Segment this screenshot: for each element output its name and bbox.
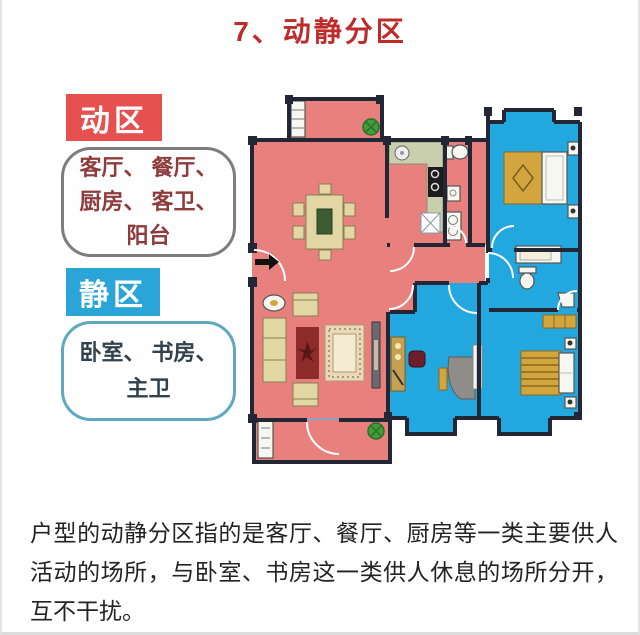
dining-chair [293,226,304,239]
infographic-page: 7、动静分区 动区 客厅、 餐厅、 厨房、 客卫、 阳台 静区 卧室、 书房、 … [0,0,640,635]
dresser [543,315,576,328]
bedroom-bay [499,418,550,434]
active-zone-room-list: 客厅、 餐厅、 厨房、 客卫、 阳台 [61,147,236,257]
sofa [263,318,286,382]
side-table-decor [270,300,278,306]
lamp-icon [568,341,573,346]
prep-table [421,213,440,233]
dining-chair [319,250,331,260]
page-title: 7、动静分区 [2,10,638,50]
sink-icon [447,186,460,201]
armchair [293,383,318,406]
active-rooms-line: 阳台 [64,219,233,253]
quiet-zone-badge: 静区 [66,268,160,316]
armchair [293,293,318,316]
bed-blanket [504,152,542,204]
quiet-rooms-line: 卧室、 书房、 [64,335,233,371]
rug-center [333,334,356,372]
toilet-icon [452,145,468,159]
quiet-rooms-line: 主卫 [64,371,233,407]
active-rooms-line: 客厅、 餐厅、 [64,151,233,185]
dining-chair [344,203,355,216]
study-bay [407,418,455,434]
active-rooms-line: 厨房、 客卫、 [64,185,233,219]
description-text: 户型的动静分区指的是客厅、餐厅、厨房等一类主要供人活动的场所，与卧室、书房这一类… [30,514,618,631]
kitchen-sink-drain [400,151,404,155]
tv-screen [374,340,378,370]
bench [439,368,447,390]
dining-chair [319,184,331,194]
washer-icon [446,212,461,240]
desk-item [395,354,401,360]
living-door-notch [387,283,415,312]
lamp-icon [571,146,576,151]
dining-chair [344,226,355,239]
lamp-icon [568,400,573,405]
toilet-tank [519,267,536,273]
active-zone-badge: 动区 [66,94,162,141]
toilet-icon [520,273,534,289]
chair [409,351,425,367]
stove-icon [428,167,443,197]
utility-sink [258,421,273,458]
balcony-bottom [254,418,390,462]
hallway-area [252,245,485,283]
quiet-zone-room-list: 卧室、 书房、 主卫 [61,321,236,421]
floor-plan [245,85,595,481]
dining-chair [293,203,304,216]
lamp-icon [571,209,576,214]
desk-lamp [395,343,401,349]
table-runner [317,209,332,234]
